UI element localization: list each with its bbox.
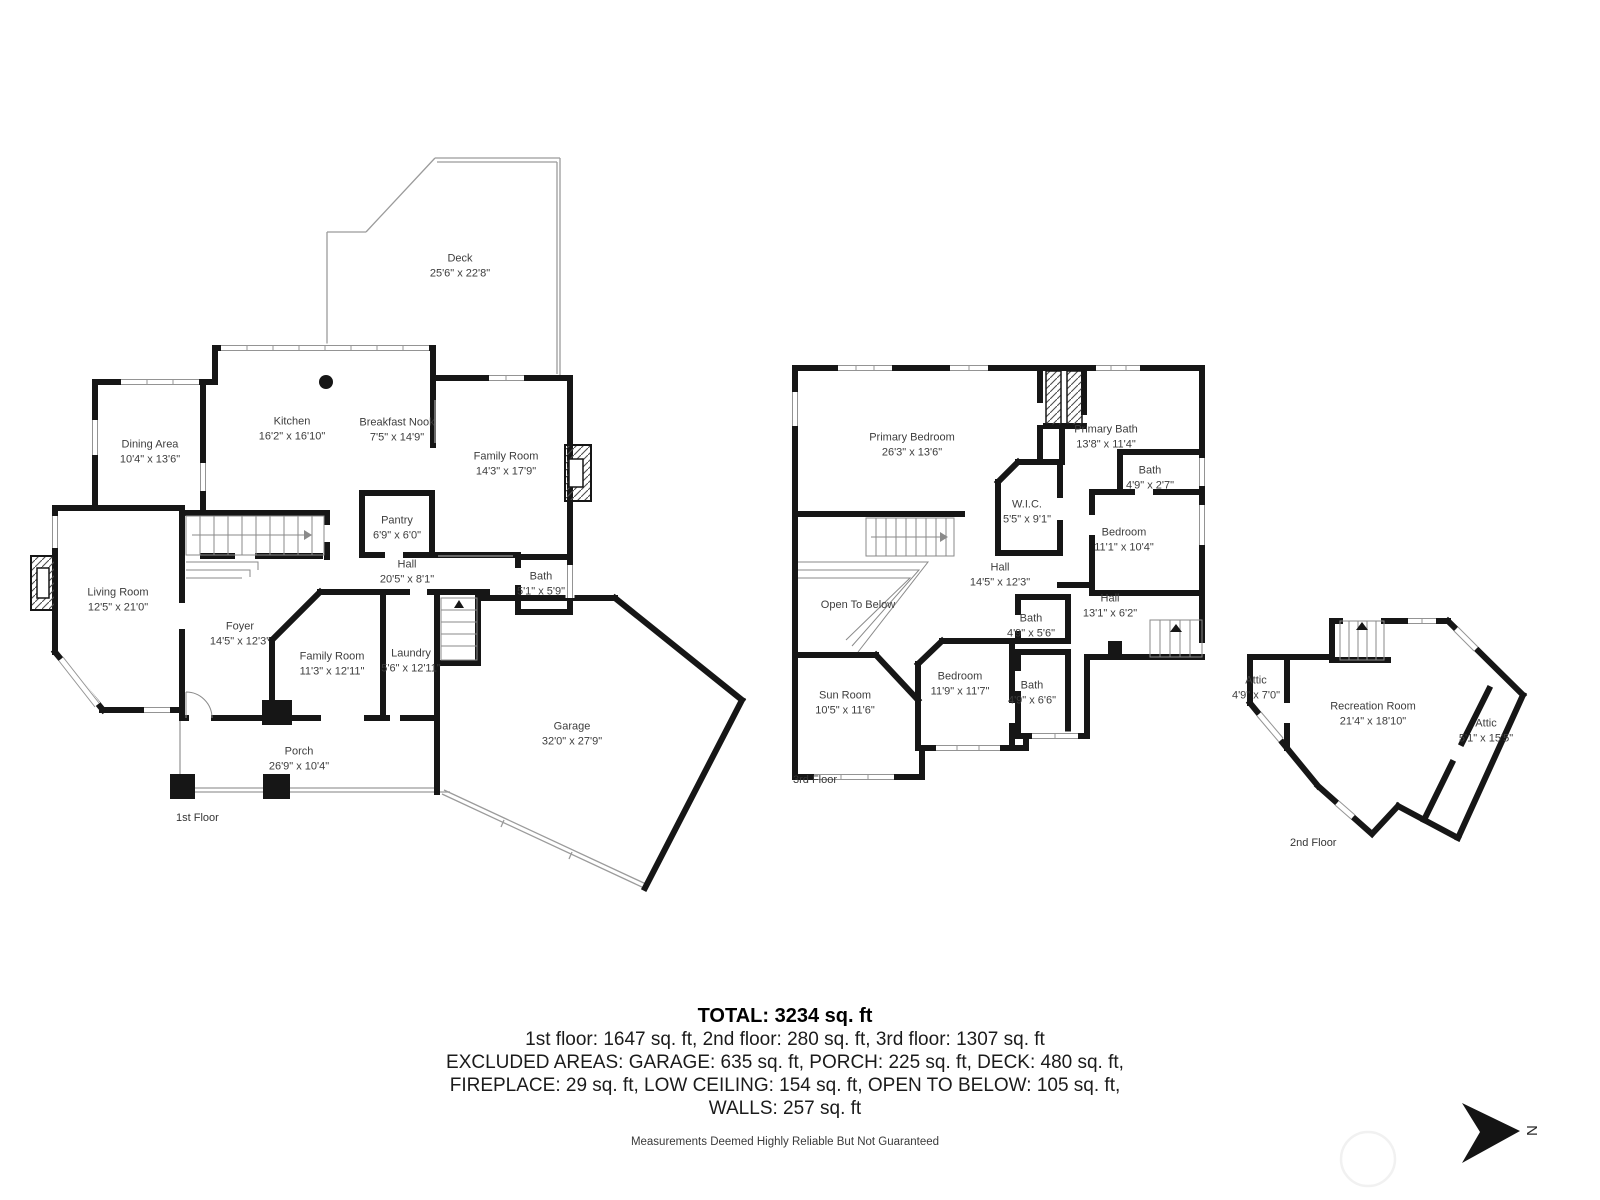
room-dims: 10'4" x 13'6" [120, 452, 180, 467]
room-label-porch: Porch 26'9" x 10'4" [269, 745, 329, 774]
porch-post [263, 774, 290, 799]
room-label-hall: Hall 20'5" x 8'1" [380, 558, 434, 587]
room-dims: 5'6" x 12'11" [381, 661, 441, 676]
room-name: Sun Room [815, 689, 875, 704]
room-dims: 5'5" x 9'1" [1003, 512, 1051, 527]
room-label-bath-3rd: Bath 4'9" x 5'6" [1007, 612, 1055, 641]
room-dims: 26'9" x 10'4" [269, 759, 329, 774]
room-label-foyer: Foyer 14'5" x 12'3" [210, 620, 270, 649]
room-dims: 21'4" x 18'10" [1330, 714, 1416, 729]
room-label-wic: W.I.C. 5'5" x 9'1" [1003, 498, 1051, 527]
caption-2nd-floor: 2nd Floor [1290, 837, 1336, 849]
room-name: Family Room [474, 450, 539, 465]
room-name: Attic [1459, 717, 1513, 732]
room-name: Bedroom [1094, 526, 1154, 541]
room-name: Hall [1083, 592, 1137, 607]
room-label-bedroom: Bedroom 11'1" x 10'4" [1094, 526, 1154, 555]
room-name: Pantry [373, 514, 421, 529]
room-name: Laundry [381, 647, 441, 662]
room-name: Bath [1008, 679, 1056, 694]
room-label-open-to-below: Open To Below [821, 598, 895, 613]
room-dims: 4'9" x 7'0" [1232, 688, 1280, 703]
room-dims: 13'8" x 11'4" [1074, 437, 1138, 452]
north-label: N [1523, 1125, 1540, 1136]
room-name: Bath [1126, 464, 1174, 479]
stairs-2nd-to-3rd [1150, 620, 1202, 657]
room-label-primary-bath: Primary Bath 13'8" x 11'4" [1074, 423, 1138, 452]
room-label-recreation-room: Recreation Room 21'4" x 18'10" [1330, 700, 1416, 729]
room-label-primary-bedroom: Primary Bedroom 26'3" x 13'6" [869, 431, 955, 460]
room-name: Primary Bedroom [869, 431, 955, 446]
kitchen-fixture [319, 375, 333, 389]
room-dims: 26'3" x 13'6" [869, 445, 955, 460]
disclaimer-text: Measurements Deemed Highly Reliable But … [0, 1136, 1570, 1148]
room-name: Bath [1007, 612, 1055, 627]
room-dims: 11'3" x 12'11" [300, 664, 365, 679]
room-dims: 20'5" x 8'1" [380, 572, 434, 587]
room-dims: 14'5" x 12'3" [970, 575, 1030, 590]
room-name: Open To Below [821, 598, 895, 613]
room-label-living-room: Living Room 12'5" x 21'0" [87, 586, 148, 615]
porch-post [170, 774, 195, 799]
room-label-bedroom-2: Bedroom 11'9" x 11'7" [931, 670, 990, 699]
room-label-attic-left: Attic 4'9" x 7'0" [1232, 674, 1280, 703]
room-dims: 12'5" x 21'0" [87, 600, 148, 615]
room-name: Deck [430, 252, 490, 267]
room-dims: 32'0" x 27'9" [542, 734, 602, 749]
room-label-attic-right: Attic 5'1" x 15'5" [1459, 717, 1513, 746]
stairs-foyer [186, 516, 324, 578]
room-name: Hall [970, 561, 1030, 576]
stairs-3rd-floor [798, 518, 954, 652]
room-label-bath-small: Bath 4'9" x 2'7" [1126, 464, 1174, 493]
excluded-areas-text-2: FIREPLACE: 29 sq. ft, LOW CEILING: 154 s… [0, 1074, 1570, 1097]
room-dims: 11'1" x 10'4" [1094, 540, 1154, 555]
room-label-bath-3rd-2: Bath 4'9" x 6'6" [1008, 679, 1056, 708]
room-label-pantry: Pantry 6'9" x 6'0" [373, 514, 421, 543]
room-label-kitchen: Kitchen 16'2" x 16'10" [259, 415, 325, 444]
room-dims: 11'9" x 11'7" [931, 684, 990, 699]
room-dims: 4'9" x 2'7" [1126, 478, 1174, 493]
room-label-laundry: Laundry 5'6" x 12'11" [381, 647, 441, 676]
room-name: Family Room [300, 650, 365, 665]
total-area-text: TOTAL: 3234 sq. ft [0, 1004, 1570, 1028]
room-name: Garage [542, 720, 602, 735]
room-label-bath: Bath 5'1" x 5'9" [517, 570, 565, 599]
room-name: Porch [269, 745, 329, 760]
room-label-hall-3rd: Hall 14'5" x 12'3" [970, 561, 1030, 590]
wall-corner-block [262, 700, 292, 725]
caption-1st-floor: 1st Floor [176, 812, 219, 824]
floor-areas-text: 1st floor: 1647 sq. ft, 2nd floor: 280 s… [0, 1028, 1570, 1051]
room-dims: 6'9" x 6'0" [373, 528, 421, 543]
room-dims: 13'1" x 6'2" [1083, 606, 1137, 621]
excluded-areas-text-1: EXCLUDED AREAS: GARAGE: 635 sq. ft, PORC… [0, 1051, 1570, 1074]
room-label-hall-3rd-2: Hall 13'1" x 6'2" [1083, 592, 1137, 621]
chimney [1046, 371, 1061, 425]
wall-block [1108, 641, 1122, 657]
chimney [1067, 371, 1082, 425]
room-dims: 4'9" x 5'6" [1007, 626, 1055, 641]
room-name: Hall [380, 558, 434, 573]
room-label-dining-area: Dining Area 10'4" x 13'6" [120, 438, 180, 467]
room-name: Primary Bath [1074, 423, 1138, 438]
room-name: Foyer [210, 620, 270, 635]
room-name: Kitchen [259, 415, 325, 430]
room-name: Attic [1232, 674, 1280, 689]
room-name: Recreation Room [1330, 700, 1416, 715]
room-label-family-room: Family Room 14'3" x 17'9" [474, 450, 539, 479]
room-name: Breakfast Nook [359, 416, 434, 431]
room-dims: 5'1" x 15'5" [1459, 731, 1513, 746]
room-name: Living Room [87, 586, 148, 601]
room-dims: 10'5" x 11'6" [815, 703, 875, 718]
room-dims: 16'2" x 16'10" [259, 429, 325, 444]
room-label-family-room-2: Family Room 11'3" x 12'11" [300, 650, 365, 679]
caption-3rd-floor: 3rd Floor [793, 774, 837, 786]
room-dims: 14'5" x 12'3" [210, 634, 270, 649]
excluded-areas-text-3: WALLS: 257 sq. ft [0, 1097, 1570, 1120]
area-summary: TOTAL: 3234 sq. ft 1st floor: 1647 sq. f… [0, 1004, 1570, 1120]
room-dims: 7'5" x 14'9" [359, 430, 434, 445]
floor-plan-page: Deck 25'6" x 22'8" Dining Area 10'4" x 1… [0, 0, 1600, 1200]
room-dims: 14'3" x 17'9" [474, 464, 539, 479]
room-name: Bath [517, 570, 565, 585]
room-dims: 5'1" x 5'9" [517, 584, 565, 599]
room-label-sun-room: Sun Room 10'5" x 11'6" [815, 689, 875, 718]
stairs-2nd-floor [1340, 621, 1384, 660]
room-label-deck: Deck 25'6" x 22'8" [430, 252, 490, 281]
room-name: W.I.C. [1003, 498, 1051, 513]
room-dims: 25'6" x 22'8" [430, 266, 490, 281]
room-name: Bedroom [931, 670, 990, 685]
stairs-garage [441, 598, 477, 660]
room-name: Dining Area [120, 438, 180, 453]
room-label-garage: Garage 32'0" x 27'9" [542, 720, 602, 749]
room-dims: 4'9" x 6'6" [1008, 693, 1056, 708]
room-label-breakfast-nook: Breakfast Nook 7'5" x 14'9" [359, 416, 434, 445]
